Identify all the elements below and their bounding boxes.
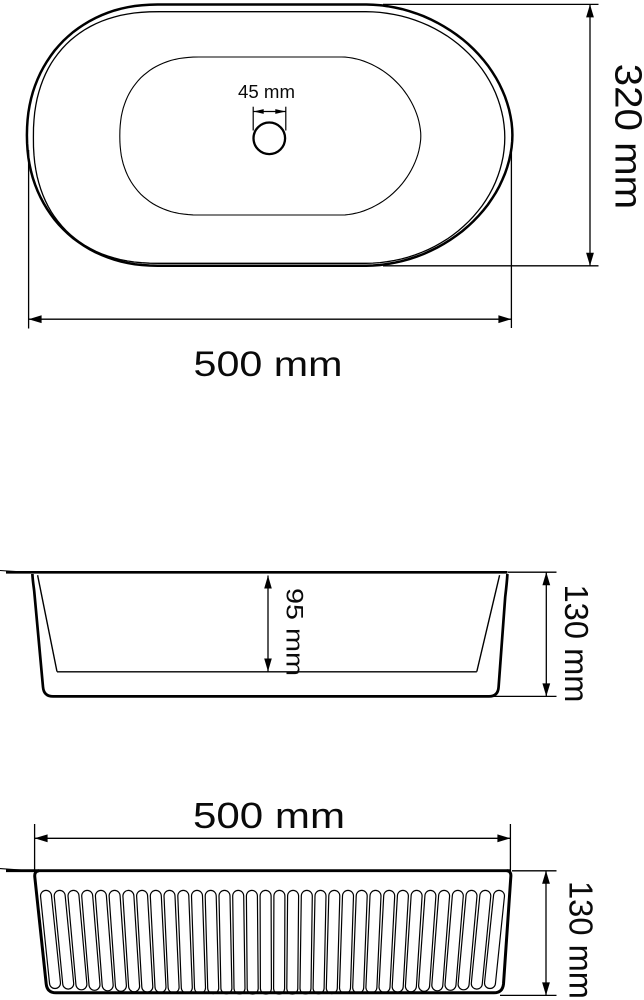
- svg-text:130 mm: 130 mm: [563, 881, 600, 999]
- svg-text:320 mm: 320 mm: [606, 64, 644, 210]
- svg-text:130 mm: 130 mm: [558, 585, 595, 703]
- svg-text:500 mm: 500 mm: [194, 345, 343, 384]
- svg-text:500 mm: 500 mm: [193, 795, 345, 836]
- svg-text:95 mm: 95 mm: [281, 588, 308, 676]
- svg-text:45 mm: 45 mm: [238, 81, 295, 102]
